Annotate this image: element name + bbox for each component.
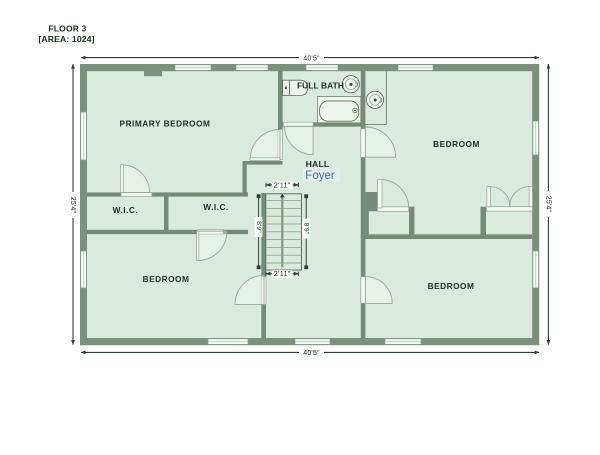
svg-text:25'4": 25'4" — [69, 197, 76, 214]
svg-text:8'9": 8'9" — [255, 221, 262, 233]
svg-text:PRIMARY BEDROOM: PRIMARY BEDROOM — [120, 119, 211, 129]
svg-text:2'11": 2'11" — [274, 269, 291, 278]
svg-text:2'11": 2'11" — [274, 180, 291, 189]
svg-text:[AREA: 1024]: [AREA: 1024] — [38, 34, 94, 44]
svg-text:40'5": 40'5" — [303, 55, 320, 62]
svg-text:8'9": 8'9" — [302, 223, 309, 235]
svg-text:BEDROOM: BEDROOM — [143, 274, 190, 284]
svg-text:FULL BATH: FULL BATH — [297, 81, 344, 91]
svg-text:W.I.C.: W.I.C. — [203, 202, 229, 212]
svg-text:25'4": 25'4" — [545, 196, 552, 213]
svg-text:BEDROOM: BEDROOM — [428, 281, 475, 291]
svg-text:FLOOR 3: FLOOR 3 — [48, 24, 86, 34]
svg-text:HALL: HALL — [306, 159, 330, 169]
svg-text:Foyer: Foyer — [305, 170, 335, 182]
svg-text:W.I.C.: W.I.C. — [113, 205, 139, 215]
svg-text:40'5": 40'5" — [303, 350, 320, 357]
svg-text:BEDROOM: BEDROOM — [433, 139, 480, 149]
